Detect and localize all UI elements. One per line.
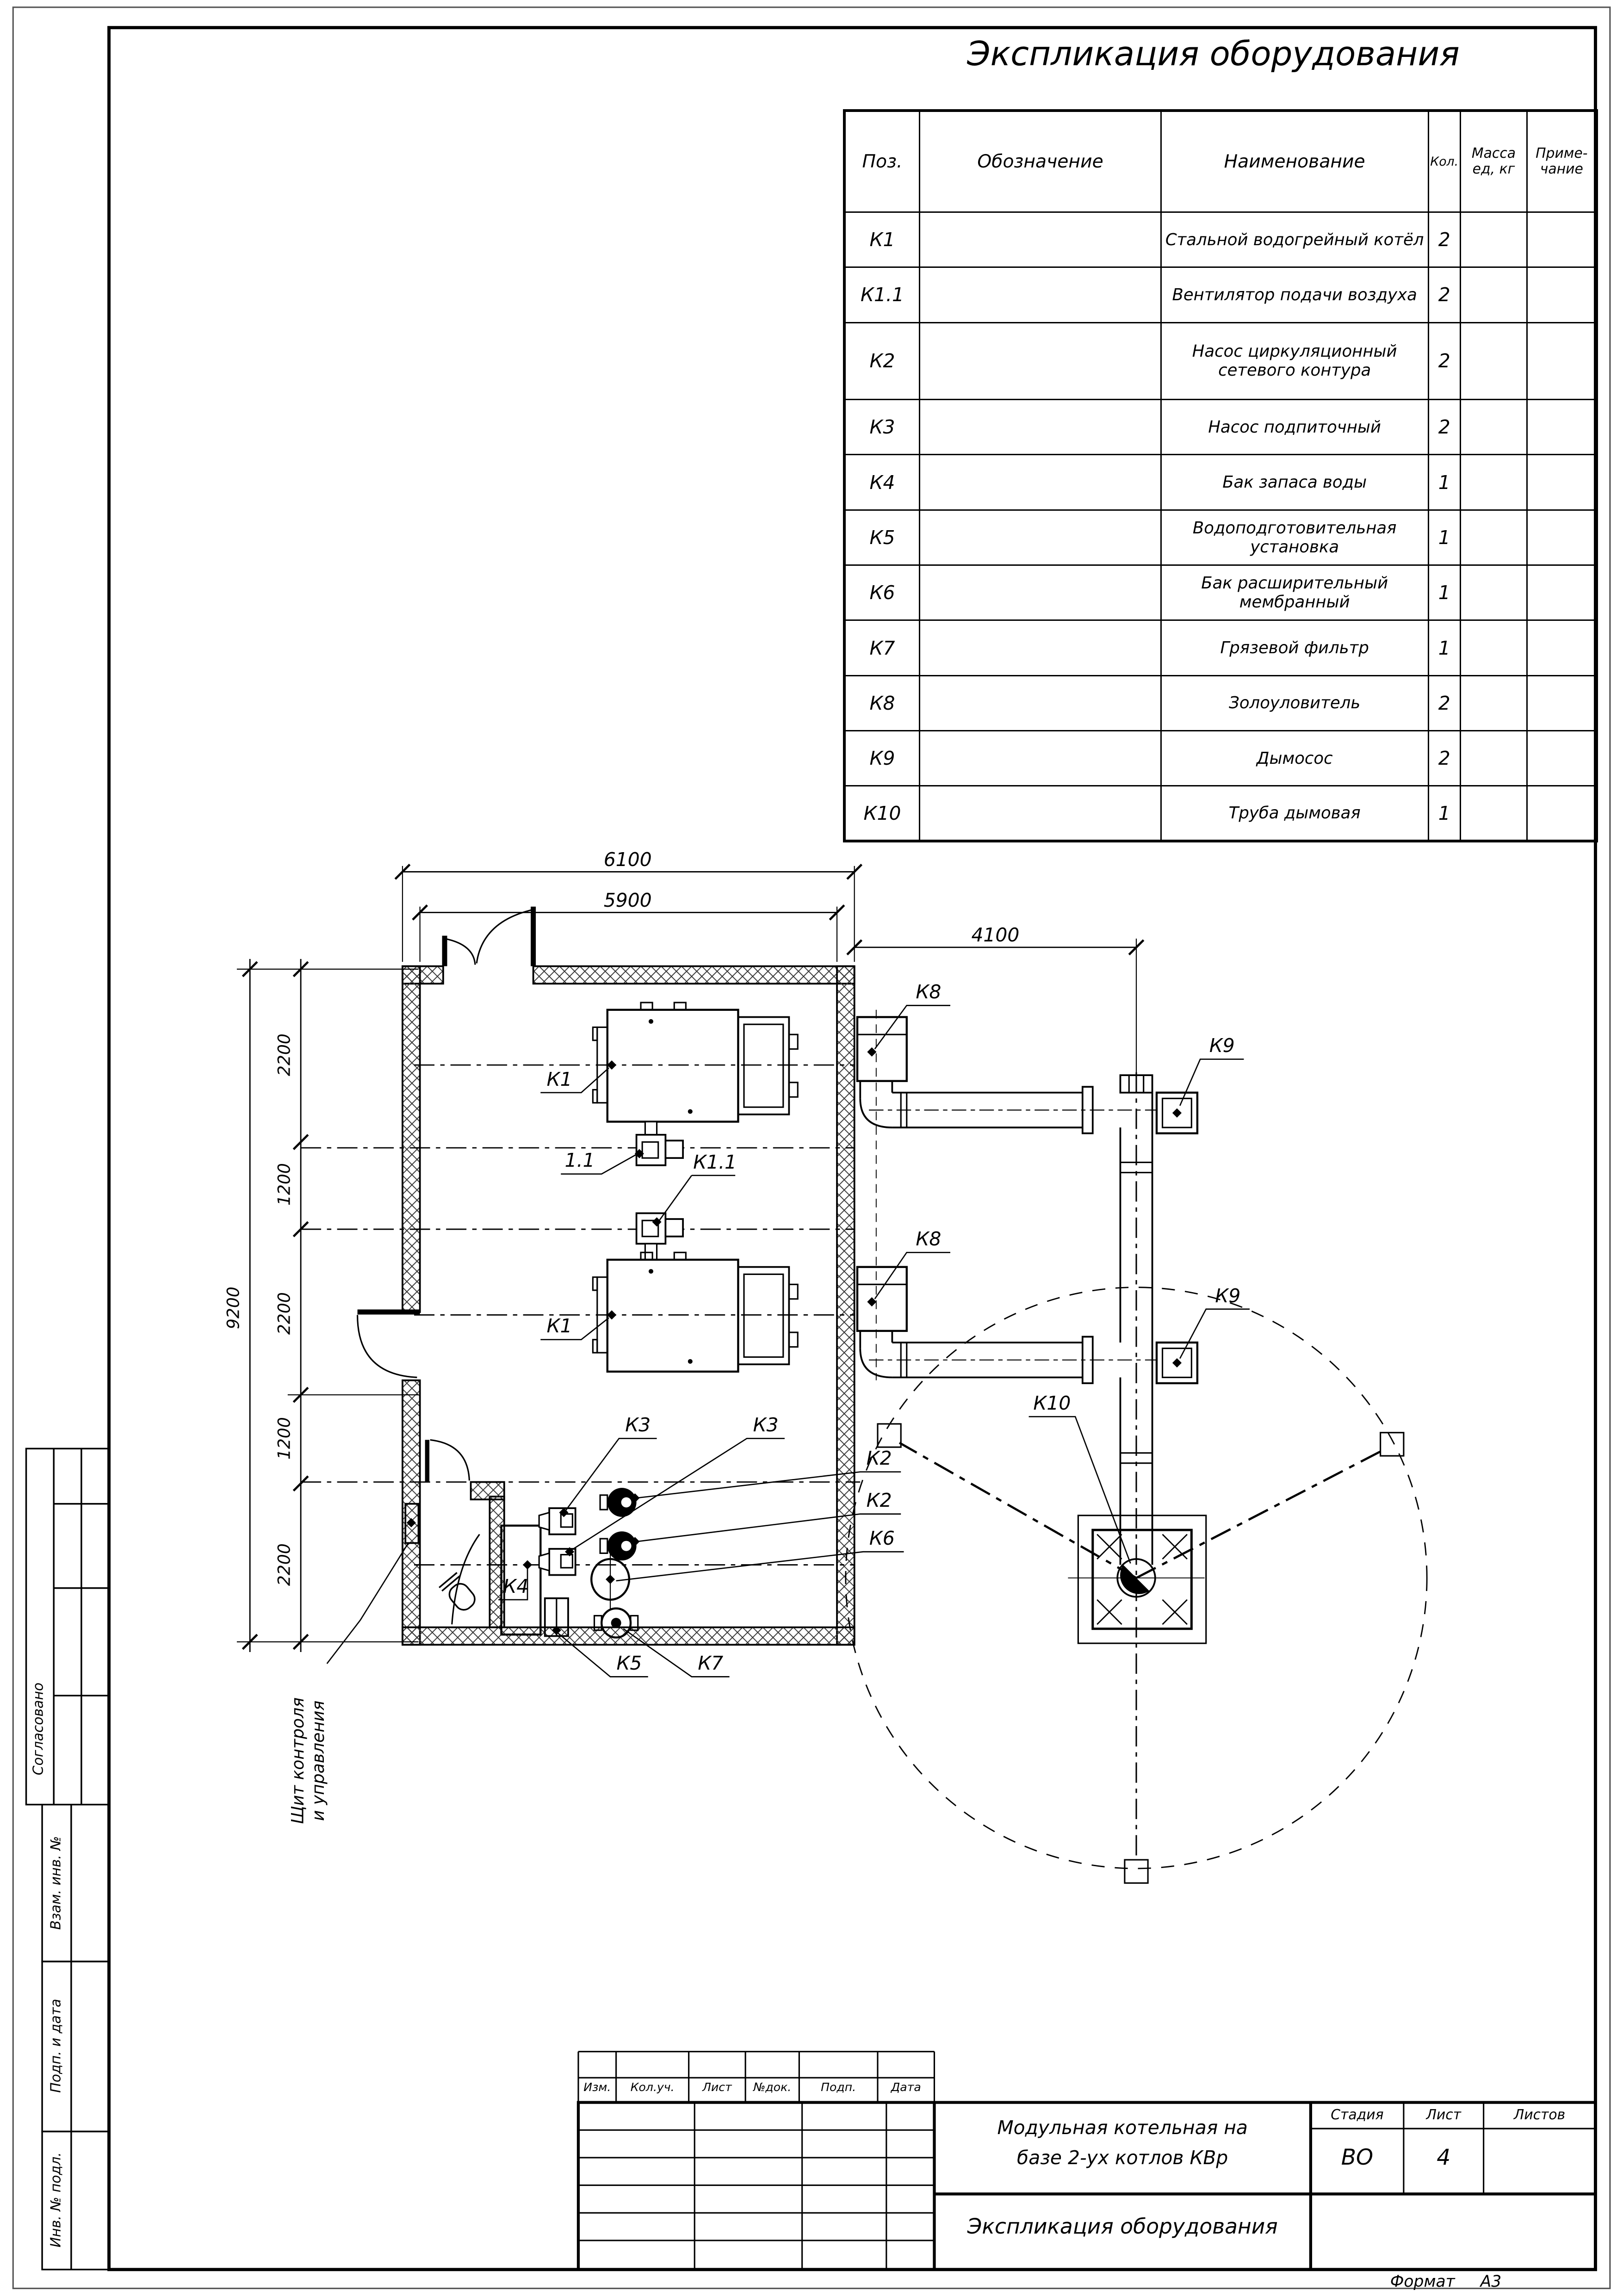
leader-markers <box>407 1047 1182 1635</box>
col-header-note: Приме- чание <box>1527 111 1597 212</box>
label-boiler-bottom: К1 <box>538 1316 581 1336</box>
stage-header: Стадия <box>1311 2107 1404 2123</box>
project-name: Модульная котельная на базе 2-ух котлов … <box>937 2113 1308 2173</box>
table-row: К5Водоподготовительная установка1 <box>844 510 1597 565</box>
label-exhauster-bottom: К9 <box>1203 1286 1252 1306</box>
doors <box>358 907 533 1482</box>
sidebar-agreed: Согласовано <box>28 1642 51 1816</box>
cell-pos: К7 <box>844 620 920 675</box>
rev-col-izm: Изм. <box>578 2080 616 2094</box>
cell-pos: К3 <box>844 400 920 455</box>
table-header-row: Поз. Обозначение Наименование Кол. Масса… <box>844 111 1597 212</box>
cell-name: Стальной водогрейный котёл <box>1161 212 1428 267</box>
boiler-2 <box>593 1252 798 1372</box>
cell-name: Бак расширительный мембранный <box>1161 565 1428 620</box>
flue-riser <box>1120 1072 1152 1857</box>
cell-name: Труба дымовая <box>1161 786 1428 841</box>
cell-pos: К9 <box>844 731 920 786</box>
rev-col-koluch: Кол.уч. <box>616 2080 689 2094</box>
cell-pos: К10 <box>844 786 920 841</box>
dim-overall-height: 9200 <box>223 1220 246 1395</box>
sidebar-sign-date: Подп. и дата <box>45 1959 68 2133</box>
label-mud-filter: К7 <box>689 1653 732 1673</box>
cell-pos: К2 <box>844 322 920 399</box>
label-boiler-top: К1 <box>538 1070 581 1089</box>
label-chimney: К10 <box>1023 1393 1081 1413</box>
table-row: К9Дымосос2 <box>844 731 1597 786</box>
cell-qty: 1 <box>1428 620 1460 675</box>
circ-pump-k2-2 <box>600 1531 637 1560</box>
cell-qty: 1 <box>1428 786 1460 841</box>
cell-name: Дымосос <box>1161 731 1428 786</box>
cell-qty: 1 <box>1428 510 1460 565</box>
label-expansion-tank: К6 <box>860 1529 904 1548</box>
label-circ-pump-2: К2 <box>857 1491 901 1510</box>
rev-col-list: Лист <box>689 2080 745 2094</box>
cell-name: Грязевой фильтр <box>1161 620 1428 675</box>
cell-qty: 2 <box>1428 212 1460 267</box>
label-ash-collector-bottom: К8 <box>904 1229 954 1249</box>
wc-room <box>439 1535 479 1625</box>
chimney-k10 <box>1068 1516 1206 1643</box>
document-title: Экспликация оборудования <box>937 2214 1308 2239</box>
cell-pos: К1 <box>844 212 920 267</box>
cell-qty: 2 <box>1428 400 1460 455</box>
cell-name: Насос подпиточный <box>1161 400 1428 455</box>
drawing-sheet: Экспликация оборудования Поз. Обозначени… <box>0 0 1623 2296</box>
table-row: К3Насос подпиточный2 <box>844 400 1597 455</box>
cell-name: Золоуловитель <box>1161 675 1428 730</box>
table-row: К6Бак расширительный мембранный1 <box>844 565 1597 620</box>
cell-name: Бак запаса воды <box>1161 455 1428 510</box>
cell-pos: К4 <box>844 455 920 510</box>
col-header-name: Наименование <box>1161 111 1428 212</box>
table-row: К1.1Вентилятор подачи воздуха2 <box>844 267 1597 322</box>
table-row: К7Грязевой фильтр1 <box>844 620 1597 675</box>
label-control-panel: Щит контроля и управления <box>288 1666 331 1855</box>
cell-pos: К1.1 <box>844 267 920 322</box>
label-exhauster-top: К9 <box>1197 1036 1247 1056</box>
dim-chimney-offset: 4100 <box>923 924 1068 946</box>
cell-qty: 1 <box>1428 455 1460 510</box>
label-feed-pump-1: К3 <box>616 1415 660 1435</box>
cell-qty: 2 <box>1428 731 1460 786</box>
col-header-mass: Масса ед, кг <box>1460 111 1527 212</box>
col-header-qty: Кол. <box>1428 111 1460 212</box>
table-row: К2Насос циркуляционный сетевого контура2 <box>844 322 1597 399</box>
label-fan-top: 1.1 <box>558 1151 601 1170</box>
rev-col-data: Дата <box>878 2080 934 2094</box>
sidebar-inv-orig: Инв. № подл. <box>45 2113 68 2287</box>
sheets-header: Листов <box>1484 2107 1596 2123</box>
sheet-value: 4 <box>1404 2145 1484 2170</box>
cell-qty: 1 <box>1428 565 1460 620</box>
flue-top <box>857 1010 1157 1380</box>
cell-pos: К5 <box>844 510 920 565</box>
stage-value: ВО <box>1311 2145 1404 2170</box>
col-header-pos: Поз. <box>844 111 920 212</box>
table-row: К4Бак запаса воды1 <box>844 455 1597 510</box>
cell-qty: 2 <box>1428 267 1460 322</box>
cell-name: Вентилятор подачи воздуха <box>1161 267 1428 322</box>
boiler-1 <box>593 1003 798 1122</box>
label-ash-collector-top: К8 <box>904 982 954 1002</box>
format-note: Формат А3 <box>1308 2272 1584 2291</box>
table-row: К8Золоуловитель2 <box>844 675 1597 730</box>
cell-qty: 2 <box>1428 322 1460 399</box>
table-row: К10Труба дымовая1 <box>844 786 1597 841</box>
cell-pos: К6 <box>844 565 920 620</box>
cell-name: Насос циркуляционный сетевого контура <box>1161 322 1428 399</box>
cell-pos: К8 <box>844 675 920 730</box>
dim-segment: 2200 <box>273 1478 296 1652</box>
dim-inner-width: 5900 <box>555 889 700 911</box>
foundation-crosses <box>1097 1535 1187 1625</box>
flue-bottom <box>857 1267 1157 1383</box>
cell-name: Водоподготовительная установка <box>1161 510 1428 565</box>
label-circ-pump-1: К2 <box>857 1448 901 1468</box>
feed-pump-k3-1 <box>539 1508 576 1535</box>
dim-overall-width: 6100 <box>555 848 700 871</box>
sheet-header: Лист <box>1404 2107 1484 2123</box>
col-header-designation: Обозначение <box>920 111 1161 212</box>
page-title: Экспликация оборудования <box>959 35 1468 74</box>
table-row: К1Стальной водогрейный котёл2 <box>844 212 1597 267</box>
sidebar-replace-inv: Взам. инв. № <box>45 1796 68 1970</box>
label-water-tank: К4 <box>497 1577 535 1597</box>
cell-qty: 2 <box>1428 675 1460 730</box>
label-fan-bottom: К1.1 <box>689 1152 741 1172</box>
label-water-treatment: К5 <box>607 1653 651 1673</box>
rev-col-podp: Подп. <box>799 2080 878 2094</box>
rev-col-ndok: №док. <box>745 2080 799 2094</box>
equipment-table: Поз. Обозначение Наименование Кол. Масса… <box>843 109 1598 843</box>
air-fan-top <box>637 1122 683 1165</box>
label-feed-pump-2: К3 <box>744 1415 787 1435</box>
